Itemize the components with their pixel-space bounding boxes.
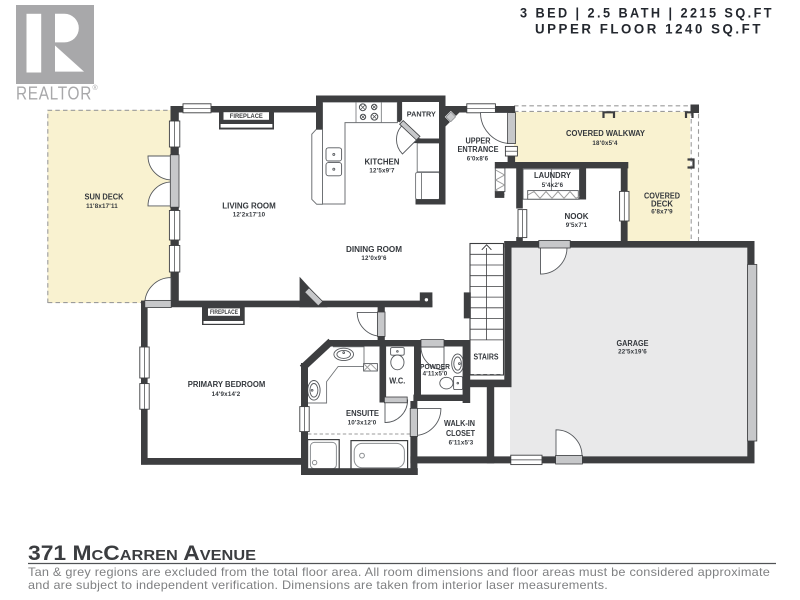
svg-text:KITCHEN: KITCHEN bbox=[365, 158, 400, 167]
svg-text:DECK: DECK bbox=[651, 199, 673, 208]
svg-text:LIVING ROOM: LIVING ROOM bbox=[222, 202, 276, 211]
svg-text:371 McCarren Avenue: 371 McCarren Avenue bbox=[28, 542, 256, 565]
svg-text:22'5x19'6: 22'5x19'6 bbox=[618, 348, 647, 355]
svg-text:STAIRS: STAIRS bbox=[474, 353, 500, 362]
svg-text:FIREPLACE: FIREPLACE bbox=[210, 310, 238, 316]
svg-text:UPPER FLOOR 1240 SQ.FT: UPPER FLOOR 1240 SQ.FT bbox=[535, 21, 763, 36]
svg-text:5'4x2'6: 5'4x2'6 bbox=[542, 182, 564, 189]
svg-text:CLOSET: CLOSET bbox=[446, 429, 475, 438]
svg-text:NOOK: NOOK bbox=[565, 212, 589, 221]
svg-text:11'8x17'11: 11'8x17'11 bbox=[86, 203, 118, 210]
svg-text:6'8x7'9: 6'8x7'9 bbox=[651, 209, 673, 216]
svg-text:10'3x12'0: 10'3x12'0 bbox=[348, 420, 377, 427]
svg-text:4'11x5'0: 4'11x5'0 bbox=[423, 371, 448, 378]
svg-text:UPPER: UPPER bbox=[466, 136, 491, 145]
svg-text:12'0x9'6: 12'0x9'6 bbox=[361, 255, 387, 262]
svg-text:PRIMARY BEDROOM: PRIMARY BEDROOM bbox=[188, 380, 266, 389]
svg-text:and are subject to independent: and are subject to independent verificat… bbox=[28, 578, 608, 592]
svg-text:SUN DECK: SUN DECK bbox=[85, 193, 124, 202]
svg-text:ENSUITE: ENSUITE bbox=[346, 409, 380, 418]
svg-text:W.C.: W.C. bbox=[389, 376, 405, 385]
svg-text:18'0x5'4: 18'0x5'4 bbox=[592, 140, 618, 147]
svg-text:FIREPLACE: FIREPLACE bbox=[230, 114, 263, 120]
svg-text:DINING ROOM: DINING ROOM bbox=[346, 245, 402, 254]
svg-text:GARAGE: GARAGE bbox=[617, 339, 650, 348]
svg-text:12'5x9'7: 12'5x9'7 bbox=[369, 167, 395, 174]
svg-text:12'2x17'10: 12'2x17'10 bbox=[233, 212, 266, 219]
svg-text:PANTRY: PANTRY bbox=[407, 109, 436, 118]
svg-text:®: ® bbox=[93, 84, 99, 92]
svg-text:9'5x7'1: 9'5x7'1 bbox=[566, 222, 588, 229]
svg-text:Tan & grey regions are exclude: Tan & grey regions are excluded from the… bbox=[28, 565, 770, 579]
svg-text:REALTOR: REALTOR bbox=[16, 84, 92, 104]
svg-text:6'11x5'3: 6'11x5'3 bbox=[449, 439, 474, 446]
svg-text:POWDER: POWDER bbox=[420, 362, 450, 371]
svg-text:14'9x14'2: 14'9x14'2 bbox=[212, 391, 241, 398]
svg-text:COVERED WALKWAY: COVERED WALKWAY bbox=[566, 129, 646, 138]
svg-text:ENTRANCE: ENTRANCE bbox=[458, 145, 500, 154]
svg-text:WALK-IN: WALK-IN bbox=[444, 419, 475, 428]
svg-text:LAUNDRY: LAUNDRY bbox=[534, 171, 572, 180]
svg-text:3 BED | 2.5 BATH | 2215 SQ.FT: 3 BED | 2.5 BATH | 2215 SQ.FT bbox=[520, 6, 774, 21]
svg-text:6'0x8'6: 6'0x8'6 bbox=[467, 155, 489, 162]
